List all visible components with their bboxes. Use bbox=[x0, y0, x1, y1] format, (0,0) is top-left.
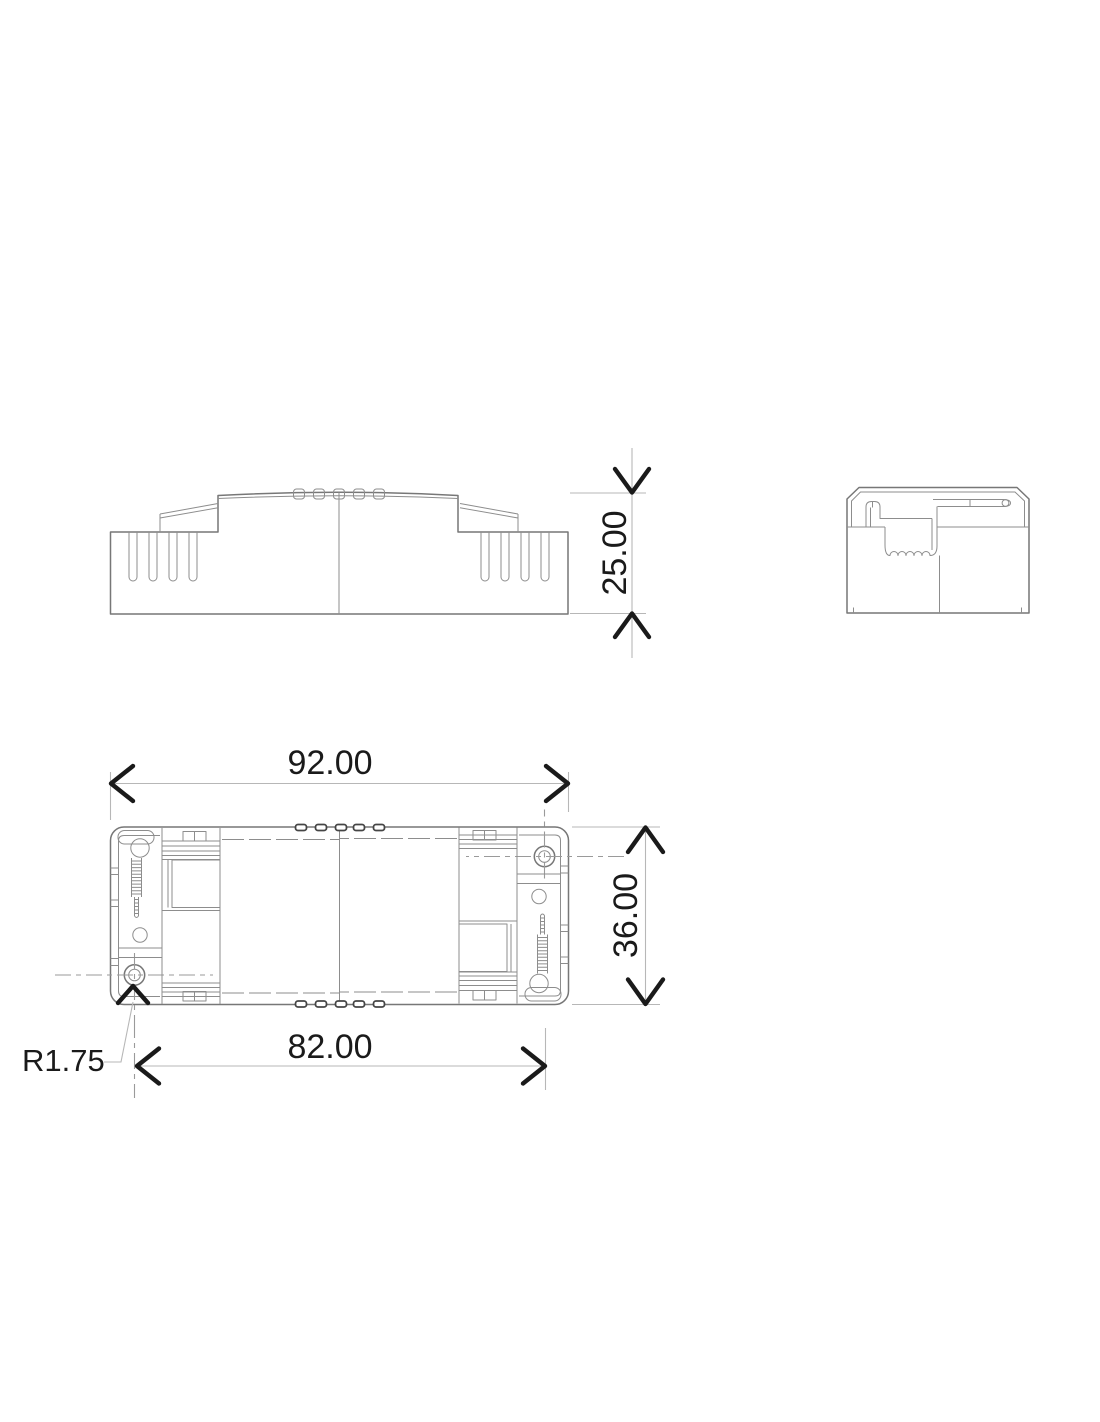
dim-label-overall-width: 92.00 bbox=[287, 744, 372, 782]
plan-wall-ribs bbox=[111, 868, 119, 966]
side-view-fins-left bbox=[129, 504, 218, 582]
plan-view-left-half bbox=[55, 828, 340, 1022]
dim-label-corner-radius: R1.75 bbox=[22, 1043, 105, 1078]
end-view bbox=[847, 488, 1029, 614]
radius-leader-arrow bbox=[118, 986, 148, 1003]
technical-drawing-page: 25.00 bbox=[0, 0, 1100, 1422]
plan-screw bbox=[132, 858, 142, 918]
plan-corner-tab bbox=[118, 831, 154, 845]
dim-label-mounting-span: 82.00 bbox=[287, 1028, 372, 1066]
side-view-fins-right bbox=[460, 504, 549, 582]
radius-leader-line bbox=[104, 1002, 133, 1062]
side-view bbox=[111, 489, 569, 614]
plan-view bbox=[55, 810, 624, 1023]
technical-drawing: 25.00 bbox=[0, 0, 1100, 1422]
plan-terminal-block bbox=[162, 828, 220, 1004]
dim-label-overall-depth: 36.00 bbox=[607, 873, 645, 958]
end-view-inner-wall bbox=[852, 492, 1025, 527]
plan-hole-mid bbox=[133, 928, 147, 942]
end-view-slot bbox=[933, 500, 1011, 507]
end-view-hook bbox=[866, 502, 932, 528]
dimension-width-92: 92.00 bbox=[111, 744, 569, 820]
end-view-slot-cap bbox=[1002, 500, 1009, 507]
end-view-clamp-pocket bbox=[885, 507, 937, 556]
side-view-top-wall-line bbox=[218, 496, 458, 499]
end-view-foot-ticks bbox=[854, 608, 1022, 614]
dimension-depth-36: 36.00 bbox=[572, 827, 663, 1005]
plan-hole-top bbox=[131, 839, 149, 857]
dim-label-height: 25.00 bbox=[596, 510, 634, 595]
plan-endcap-lines bbox=[119, 948, 163, 958]
plan-view-right-half bbox=[339, 810, 624, 1004]
dimension-span-82: 82.00 bbox=[135, 1022, 546, 1098]
radius-callout: R1.75 bbox=[22, 986, 148, 1078]
dimension-height-25: 25.00 bbox=[570, 448, 649, 658]
